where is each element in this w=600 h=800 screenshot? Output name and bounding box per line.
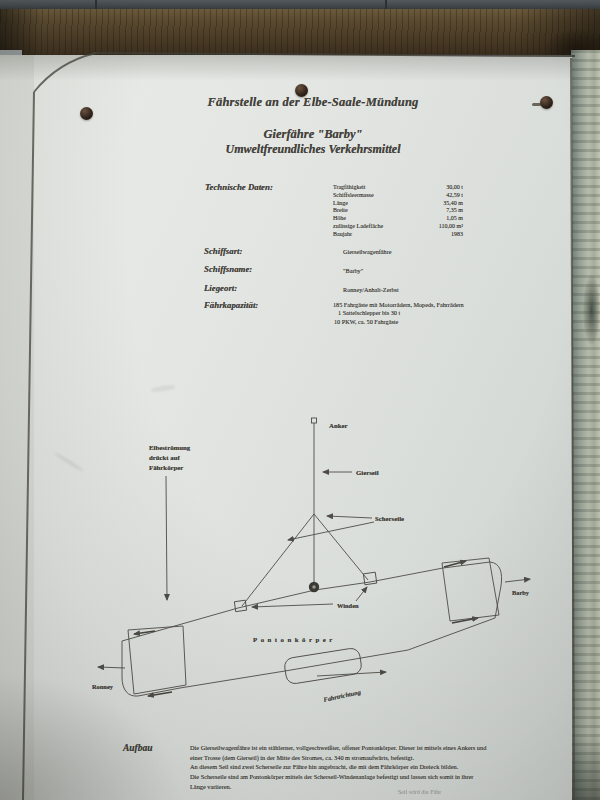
technical-data-table: Tragfähigkeit30,00 t Schiffsleermasse42,…	[333, 184, 463, 239]
table-row: zulässige Ladefläche110,00 m²	[333, 223, 463, 231]
pulley-hub	[312, 585, 315, 588]
sign-subtitle-ferry-name: Gierfähre "Barby"	[113, 127, 513, 142]
aufbau-line: einer Trosse (dem Gierseil) in der Mitte…	[190, 753, 525, 763]
barby-shore-label: Barby	[512, 589, 530, 596]
ronney-direction-arrow	[98, 667, 125, 668]
aufbau-line: Die Gierseilwagenfähre ist ein stählerne…	[190, 743, 525, 753]
ramp-left	[128, 626, 186, 694]
aufbau-heading: Aufbau	[123, 743, 153, 753]
current-label-line1: Elbeströmung	[149, 444, 191, 451]
ferry-schematic-diagram: Anker Gierseil Elbeströmung drückt auf F…	[80, 410, 560, 710]
capacity-label: Fährkapazität:	[204, 300, 258, 310]
scherseile-label: Scherseile	[375, 515, 404, 522]
ramp-left-mark-bottom	[148, 692, 172, 696]
travel-direction-label: Fahrtrichtung	[323, 688, 362, 703]
current-direction-arrow	[166, 476, 167, 600]
barby-direction-arrow	[505, 579, 530, 582]
table-row: Baujahr1983	[333, 231, 463, 239]
ship-type-value: Gierseilwagenfähre	[343, 248, 391, 255]
anchor-symbol	[312, 418, 317, 423]
gierseil-label: Gierseil	[356, 469, 379, 476]
current-label-line3: Fährkörper	[149, 464, 183, 471]
aufbau-paragraph: Die Gierseilwagenfähre ist ein stählerne…	[190, 743, 525, 792]
home-port-label: Liegeort:	[204, 283, 237, 293]
capacity-line: 10 PKW, ca. 50 Fahrgäste	[334, 318, 464, 326]
ship-type-label: Schiffsart:	[204, 246, 242, 256]
technical-data-label: Technische Daten:	[205, 182, 273, 192]
ship-name-label: Schiffsname:	[204, 264, 252, 274]
table-row: Höhe1,05 m	[333, 215, 463, 223]
winden-pointer-arrow-right	[356, 587, 367, 601]
capacity-line: 1 Sattelschlepper bis 30 t	[338, 309, 464, 317]
scherseile-pointer-arrow-1	[327, 516, 372, 518]
table-row: Tragfähigkeit30,00 t	[333, 184, 463, 192]
deck-cabin	[283, 647, 362, 685]
winden-pointer-arrow-left	[252, 604, 333, 607]
scherseil-cable-left	[242, 514, 314, 606]
table-row: Länge35,40 m	[333, 200, 463, 208]
home-port-value: Ronney/Anhalt-Zerbst	[343, 286, 399, 293]
scherseil-cable-right	[314, 514, 368, 580]
aufbau-line: Länge variieren.	[190, 782, 525, 792]
anchor-label: Anker	[329, 422, 348, 429]
capacity-lines: 185 Fahrgäste mit Motorrädern, Mopeds, F…	[333, 301, 464, 326]
aufbau-line: Die Scherseile sind am Pontonkörper mitt…	[190, 772, 525, 782]
capacity-line: 185 Fahrgäste mit Motorrädern, Mopeds, F…	[333, 301, 464, 309]
sign-content: Fährstelle an der Elbe-Saale-Mündung Gie…	[0, 0, 600, 800]
ronney-shore-label: Ronney	[92, 683, 114, 690]
table-row: Breite7,35 m	[333, 207, 463, 215]
current-label-line2: drückt auf	[149, 454, 181, 461]
pontoon-body-label: Pontonkörper	[253, 636, 336, 643]
travel-direction-arrow	[317, 672, 386, 676]
winden-label: Winden	[337, 602, 359, 609]
ship-name-value: "Barby"	[343, 267, 363, 274]
sign-title: Fährstelle an der Elbe-Saale-Mündung	[113, 95, 513, 110]
aufbau-line: An diesem Seil sind zwei Scherseile zur …	[190, 762, 525, 772]
table-row: Schiffsleermasse42,59 t	[333, 192, 463, 200]
sign-subtitle-eco: Umweltfreundliches Verkehrsmittel	[113, 142, 513, 157]
cutoff-text-fragment: Seil wird die Fähr	[398, 789, 441, 795]
